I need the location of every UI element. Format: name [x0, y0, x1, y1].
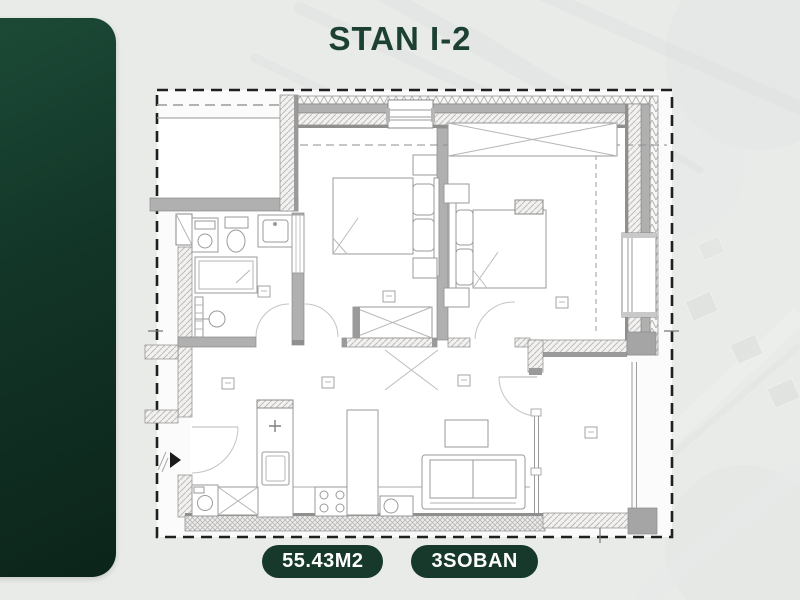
shower-icon [195, 257, 257, 293]
nightstand-icon [413, 155, 437, 175]
coffee-table-icon [445, 420, 488, 447]
top-window [386, 100, 435, 128]
sidebar-accent-panel [0, 18, 116, 577]
rooms-badge: 3SOBAN [411, 545, 537, 578]
sofa-icon [422, 455, 525, 509]
radiator-icon [195, 297, 203, 337]
sink-icon [258, 215, 293, 247]
fridge-icon [347, 410, 378, 515]
wardrobe-icon [353, 307, 432, 338]
kitchen-counter [257, 400, 293, 517]
entry-cabinet [218, 487, 258, 515]
stove-icon [315, 487, 348, 516]
washing-machine-icon [192, 218, 218, 252]
nightstand-icon [444, 288, 469, 307]
floor-plan-drawing [0, 0, 800, 600]
wardrobe-icon [448, 123, 617, 156]
area-badge: 55.43M2 [262, 545, 383, 578]
bedroom-window [622, 233, 656, 317]
badge-row: 55.43M2 3SOBAN [0, 545, 800, 578]
nightstand-icon [413, 258, 437, 278]
slide: STAN I-2 55.43M2 3SOBAN [0, 0, 800, 600]
nightstand-icon [444, 184, 469, 203]
washer-icon [192, 485, 218, 516]
dishwasher-icon [380, 496, 413, 516]
page-title: STAN I-2 [0, 20, 800, 58]
